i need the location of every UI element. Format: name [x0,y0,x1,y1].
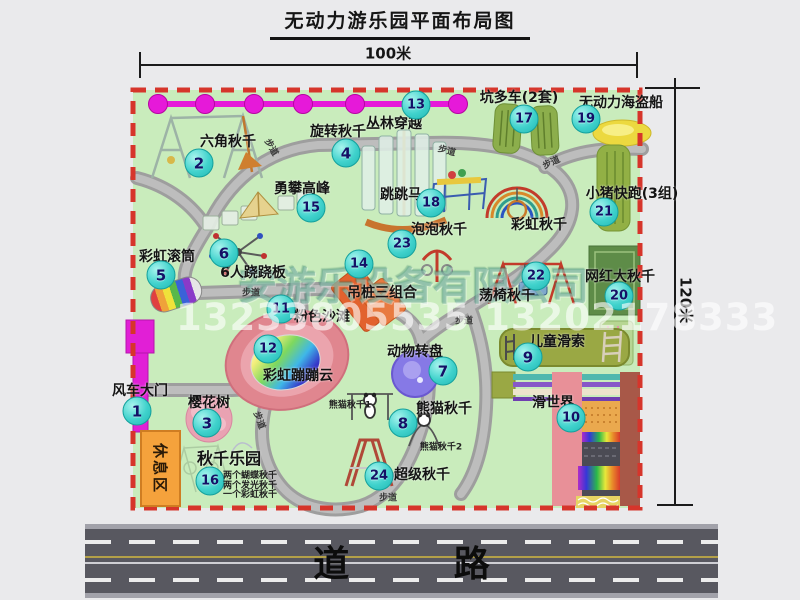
sakura-tree-art [186,396,232,442]
page-title: 无动力游乐园平面布局图 [270,6,529,40]
pig-run-art [597,145,630,231]
road: 道 路 [85,524,718,598]
park-plan-screenshot: 无动力游乐园平面布局图 100米 120米 安游乐设备有限公司 休息区 风车大门… [0,0,800,600]
road-label: 道 路 [85,529,718,593]
width-dimension-label: 100米 [365,43,411,64]
animal-turntable-art [392,351,438,397]
watermark-phone: 13233805535 13202178333 [176,296,778,339]
rest-area: 休息区 [140,430,181,507]
rest-area-label: 休息区 [150,443,171,494]
